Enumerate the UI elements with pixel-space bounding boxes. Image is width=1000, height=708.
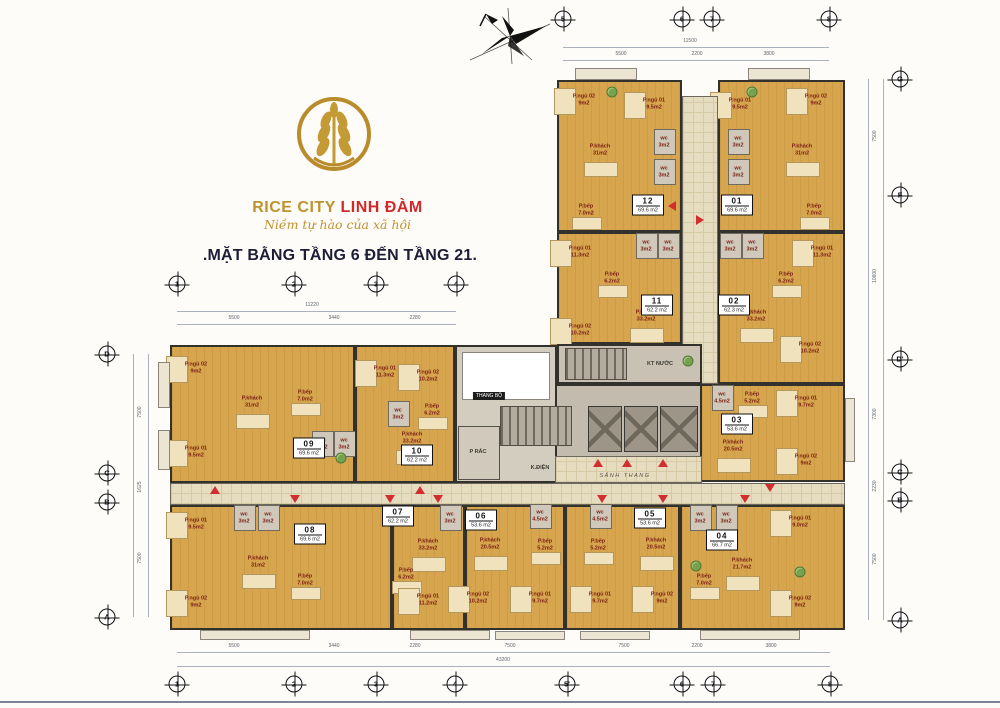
sofa-furniture: [740, 328, 774, 343]
unit-number: 12: [636, 197, 660, 207]
axis-marker-5: 5: [555, 11, 572, 28]
axis-marker-7: 7: [704, 11, 721, 28]
unit-area: 66.7 m2: [710, 543, 734, 549]
dimension-line: [177, 666, 830, 667]
room-label: P.ngủ 029m2: [573, 93, 595, 106]
room-label: wc3m2: [392, 407, 403, 420]
room-name: P.bếp: [778, 271, 794, 278]
room-name: wc: [720, 511, 731, 518]
room-name: wc: [658, 135, 669, 142]
room-name: P.ngủ 02: [651, 591, 673, 598]
room-name: wc: [338, 437, 349, 444]
unit-chip: 0466.7 m2: [706, 530, 738, 551]
room-area: 6.2m2: [604, 278, 620, 285]
room-name: P.ngủ 01: [185, 517, 207, 524]
door-marker: [668, 201, 676, 211]
room-label: P.khách31m2: [590, 143, 610, 156]
dimension-line: [563, 47, 829, 48]
room-label: P.bếp7.0m2: [696, 573, 712, 586]
room-label: P.khách21.7m2: [732, 557, 752, 570]
room-name: P.bếp: [806, 203, 822, 210]
room-area: 9m2: [795, 460, 817, 467]
dimension-label: 11220: [305, 302, 319, 308]
room-label: wc3m2: [338, 437, 349, 450]
kitchen-counter: [291, 587, 321, 600]
plant-icon: [607, 87, 618, 98]
room-area: 5.2m2: [537, 545, 553, 552]
room-label: P.khách20.5m2: [480, 537, 500, 550]
room-label: P.ngủ 0111.2m2: [417, 593, 439, 606]
room-name: P.ngủ 01: [795, 395, 817, 402]
room-area: 10.2m2: [799, 348, 821, 355]
door-marker: [765, 484, 775, 492]
room-label: P.khách33.2m2: [402, 431, 422, 444]
room-name: wc: [444, 511, 455, 518]
room-label: wc3m2: [238, 511, 249, 524]
room-area: 3m2: [658, 142, 669, 149]
room-name: wc: [746, 239, 757, 246]
room-label: wc3m2: [746, 239, 757, 252]
balcony: [575, 68, 637, 80]
room-area: 6.2m2: [778, 278, 794, 285]
room-area: 4.5m2: [532, 516, 548, 523]
room-name: P.ngủ 01: [729, 97, 751, 104]
kitchen-counter: [572, 217, 602, 230]
balcony: [700, 630, 800, 640]
room-area: 9m2: [651, 598, 673, 605]
room-area: 33.2m2: [636, 316, 656, 323]
room-label: wc4.5m2: [714, 391, 730, 404]
unit-chip: 0169.6 m2: [721, 195, 753, 216]
room-name: wc: [662, 239, 673, 246]
axis-marker-2: 2: [286, 676, 303, 693]
door-marker: [740, 495, 750, 503]
dimension-label: 7500: [618, 643, 629, 649]
room-area: 7.0m2: [806, 210, 822, 217]
room-name: wc: [532, 509, 548, 516]
room-label: P.ngủ 029m2: [795, 453, 817, 466]
room-name: P.ngủ 02: [799, 341, 821, 348]
room-area: 9.7m2: [529, 598, 551, 605]
sofa-furniture: [717, 458, 751, 473]
balcony: [200, 630, 310, 640]
room-name: P.ngủ 02: [573, 93, 595, 100]
balcony: [495, 631, 565, 640]
room-area: 3m2: [238, 518, 249, 525]
unit-chip: 0762.2 m2: [382, 506, 414, 527]
unit-area: 69.6 m2: [298, 537, 322, 543]
axis-marker-A: A: [99, 609, 116, 626]
room-name: P.bếp: [537, 538, 553, 545]
room-area: 11.3m2: [811, 252, 833, 259]
dimension-label: 2280: [409, 315, 420, 321]
room-label: P.ngủ 019.5m2: [643, 97, 665, 110]
core-label: KT NƯỚC: [647, 361, 673, 367]
elevator: [660, 406, 698, 452]
sheet-bottom-edge: [0, 701, 1000, 703]
room-area: 3m2: [262, 518, 273, 525]
room-label: P.khách20.5m2: [723, 439, 743, 452]
unit-area: 69.6 m2: [725, 208, 749, 214]
room-area: 3m2: [746, 246, 757, 253]
room-name: P.ngủ 01: [417, 593, 439, 600]
room-area: 9.5m2: [185, 452, 207, 459]
room-area: 31m2: [792, 150, 812, 157]
dimension-label: 3800: [763, 51, 774, 57]
room-label: P.ngủ 0111.3m2: [811, 245, 833, 258]
axis-marker-C: C: [892, 464, 909, 481]
room-name: P.bếp: [398, 567, 414, 574]
room-area: 3m2: [732, 172, 743, 179]
axis-marker-5': 5': [559, 676, 576, 693]
room-area: 5.2m2: [744, 398, 760, 405]
room-area: 11.3m2: [569, 252, 591, 259]
room-name: P.ngủ 02: [185, 595, 207, 602]
sofa-furniture: [584, 162, 618, 177]
dimension-label: 2200: [691, 51, 702, 57]
room-area: 3m2: [338, 444, 349, 451]
room-area: 9.7m2: [795, 402, 817, 409]
balcony: [158, 362, 170, 408]
unit-area: 53.6 m2: [725, 427, 749, 433]
room-area: 7.0m2: [696, 580, 712, 587]
door-marker: [658, 459, 668, 467]
room-label: wc4.5m2: [592, 509, 608, 522]
dimension-line: [883, 79, 884, 620]
room-label: P.khách33.2m2: [418, 538, 438, 551]
room-label: P.ngủ 019.7m2: [589, 591, 611, 604]
room-area: 9.5m2: [185, 524, 207, 531]
room-label: wc3m2: [720, 511, 731, 524]
room-area: 9.0m2: [789, 522, 811, 529]
room-label: P.ngủ 0210.2m2: [417, 369, 439, 382]
axis-marker-6: 6: [674, 676, 691, 693]
room-name: P.khách: [402, 431, 422, 438]
room-label: wc3m2: [694, 511, 705, 524]
unit-chip: 0353.6 m2: [721, 414, 753, 435]
room-label: P.ngủ 019.5m2: [185, 517, 207, 530]
axis-marker-2: 2: [286, 276, 303, 293]
room-label: P.ngủ 0111.3m2: [569, 245, 591, 258]
room-label: P.ngủ 029m2: [185, 361, 207, 374]
unit-chip: 1062.2 m2: [401, 445, 433, 466]
unit-area: 69.6 m2: [636, 208, 660, 214]
room-label: P.ngủ 019.5m2: [185, 445, 207, 458]
plant-icon: [691, 561, 702, 572]
unit-number: 08: [298, 526, 322, 536]
unit-area: 62.2 m2: [405, 458, 429, 464]
dimension-line: [177, 652, 830, 653]
unit-number: 03: [725, 416, 749, 426]
room-label: P.ngủ 029m2: [789, 595, 811, 608]
room-name: wc: [732, 135, 743, 142]
axis-marker-7: 7: [705, 676, 722, 693]
unit-area: 62.2 m2: [645, 308, 669, 314]
door-marker: [658, 495, 668, 503]
room-area: 10.2m2: [569, 330, 591, 337]
room-area: 9m2: [185, 602, 207, 609]
room-area: 31m2: [242, 402, 262, 409]
unit-chip: 1269.6 m2: [632, 195, 664, 216]
room-label: P.bếp7.0m2: [297, 389, 313, 402]
room-name: P.khách: [792, 143, 812, 150]
room-name: P.khách: [418, 538, 438, 545]
room-label: P.khách31m2: [248, 555, 268, 568]
room-label: wc3m2: [662, 239, 673, 252]
dimension-label: 5500: [228, 315, 239, 321]
unit-number: 09: [297, 440, 321, 450]
room-area: 31m2: [248, 562, 268, 569]
room-name: P.bếp: [604, 271, 620, 278]
room-area: 7.0m2: [297, 396, 313, 403]
door-marker: [290, 495, 300, 503]
dimension-line: [868, 79, 869, 620]
room-area: 11.3m2: [374, 372, 396, 379]
room-area: 21.7m2: [732, 564, 752, 571]
axis-marker-8: 8: [821, 11, 838, 28]
plant-icon: [683, 356, 694, 367]
room-label: P.khách20.5m2: [646, 537, 666, 550]
unit-chip: 0969.6 m2: [293, 438, 325, 459]
room-label: P.bếp7.0m2: [806, 203, 822, 216]
unit-chip: 0653.6 m2: [465, 510, 497, 531]
room-name: wc: [592, 509, 608, 516]
dimension-line: [177, 324, 456, 325]
unit-area: 62.2 m2: [386, 519, 410, 525]
room-name: wc: [262, 511, 273, 518]
room-area: 3m2: [392, 414, 403, 421]
stairs: [500, 406, 572, 446]
unit-chip: 0262.3 m2: [718, 295, 750, 316]
unit-area: 69.6 m2: [297, 451, 321, 457]
room-area: 3m2: [658, 172, 669, 179]
unit-number: 10: [405, 447, 429, 457]
room-area: 31m2: [590, 150, 610, 157]
room-label: wc3m2: [724, 239, 735, 252]
room-area: 4.5m2: [592, 516, 608, 523]
kitchen-counter: [418, 417, 448, 430]
kitchen-counter: [772, 285, 802, 298]
axis-marker-8: 8: [822, 676, 839, 693]
room-name: wc: [714, 391, 730, 398]
room-label: P.bếp5.2m2: [537, 538, 553, 551]
dimension-label: 7500: [504, 643, 515, 649]
room-area: 9.5m2: [729, 104, 751, 111]
room-label: wc3m2: [658, 165, 669, 178]
kitchen-counter: [690, 587, 720, 600]
door-marker: [696, 215, 704, 225]
room-name: P.khách: [242, 395, 262, 402]
room-name: P.ngủ 01: [374, 365, 396, 372]
room-area: 33.2m2: [746, 316, 766, 323]
room-name: P.khách: [723, 439, 743, 446]
room-area: 10.2m2: [467, 598, 489, 605]
room-label: P.khách31m2: [242, 395, 262, 408]
room-name: P.bếp: [578, 203, 594, 210]
room-label: P.bếp5.2m2: [590, 538, 606, 551]
balcony: [158, 430, 170, 470]
room-label: P.ngủ 029m2: [805, 93, 827, 106]
room-area: 5.2m2: [590, 545, 606, 552]
door-marker: [210, 486, 220, 494]
dimension-line: [563, 60, 829, 61]
kitchen-counter: [584, 552, 614, 565]
dimension-label: 5500: [228, 643, 239, 649]
room-area: 3m2: [694, 518, 705, 525]
room-label: wc3m2: [262, 511, 273, 524]
unit-number: 11: [645, 297, 669, 307]
room-area: 6.2m2: [398, 574, 414, 581]
axis-marker-B: B: [99, 494, 116, 511]
unit-number: 07: [386, 508, 410, 518]
room-area: 3m2: [720, 518, 731, 525]
room-label: P.bếp6.2m2: [398, 567, 414, 580]
room-area: 20.5m2: [723, 446, 743, 453]
floor-plan: P.ngủ 029m2P.ngủ 019.5m2wc3m2wc3m2P.khác…: [0, 0, 1000, 708]
room-name: wc: [238, 511, 249, 518]
stairs: [565, 348, 627, 380]
dimension-label: 7300: [872, 408, 878, 419]
axis-marker-3: 3: [368, 276, 385, 293]
balcony: [845, 398, 855, 462]
axis-marker-3: 3: [368, 676, 385, 693]
core-label: SẢNH THANG: [599, 473, 650, 479]
sofa-furniture: [786, 162, 820, 177]
room-area: 3m2: [732, 142, 743, 149]
door-marker: [593, 459, 603, 467]
room-name: P.khách: [646, 537, 666, 544]
room-label: wc3m2: [732, 135, 743, 148]
room-name: P.ngủ 01: [185, 445, 207, 452]
room-area: 9m2: [185, 368, 207, 375]
balcony: [410, 630, 490, 640]
room-area: 3m2: [444, 518, 455, 525]
plant-icon: [336, 453, 347, 464]
room-name: P.ngủ 02: [805, 93, 827, 100]
room-area: 9m2: [573, 100, 595, 107]
room-name: P.ngủ 02: [185, 361, 207, 368]
kitchen-counter: [800, 217, 830, 230]
room-label: P.ngủ 0210.2m2: [569, 323, 591, 336]
dimension-label: 2280: [409, 643, 420, 649]
unit-number: 06: [469, 512, 493, 522]
room-label: wc3m2: [640, 239, 651, 252]
dimension-label: 2230: [872, 480, 878, 491]
unit-area: 62.3 m2: [722, 308, 746, 314]
room-name: P.ngủ 01: [529, 591, 551, 598]
dimension-label: 3440: [328, 643, 339, 649]
room-label: P.bếp6.2m2: [424, 403, 440, 416]
room-name: P.ngủ 01: [643, 97, 665, 104]
room-area: 9m2: [789, 602, 811, 609]
balcony: [748, 68, 810, 80]
kitchen-counter: [598, 285, 628, 298]
room-area: 7.0m2: [297, 580, 313, 587]
door-marker: [385, 495, 395, 503]
room-name: P.bếp: [424, 403, 440, 410]
sofa-furniture: [242, 574, 276, 589]
room-label: P.khách31m2: [792, 143, 812, 156]
room-label: P.bếp7.0m2: [297, 573, 313, 586]
axis-marker-4: 4: [447, 676, 464, 693]
dimension-label: 1625: [137, 481, 143, 492]
dimension-label: 11500: [683, 38, 697, 44]
elevator: [588, 406, 622, 452]
core-label: K.ĐIỆN: [531, 465, 550, 471]
dimension-label: 7500: [137, 406, 143, 417]
axis-marker-D: D: [99, 346, 116, 363]
room-name: P.khách: [732, 557, 752, 564]
room-label: wc3m2: [658, 135, 669, 148]
room-name: P.bếp: [297, 573, 313, 580]
sofa-furniture: [726, 576, 760, 591]
plant-icon: [795, 567, 806, 578]
door-marker: [433, 495, 443, 503]
core-label: THANG BỘ: [473, 392, 505, 400]
room-name: wc: [694, 511, 705, 518]
unit-chip: 1162.2 m2: [641, 295, 673, 316]
unit-number: 04: [710, 532, 734, 542]
room-area: 4.5m2: [714, 398, 730, 405]
room-name: P.ngủ 02: [467, 591, 489, 598]
axis-marker-G: G: [892, 71, 909, 88]
sofa-furniture: [640, 556, 674, 571]
room-name: wc: [724, 239, 735, 246]
room-label: wc4.5m2: [532, 509, 548, 522]
dimension-label: 5500: [615, 51, 626, 57]
dimension-label: 7500: [872, 553, 878, 564]
room-area: 7.0m2: [578, 210, 594, 217]
room-label: P.ngủ 019.0m2: [789, 515, 811, 528]
kitchen-counter: [531, 552, 561, 565]
room-area: 20.5m2: [646, 544, 666, 551]
core-label: P RÁC: [469, 449, 486, 455]
room-area: 9m2: [805, 100, 827, 107]
room-name: P.bếp: [590, 538, 606, 545]
room-area: 3m2: [662, 246, 673, 253]
room-name: P.ngủ 01: [811, 245, 833, 252]
axis-marker-6: 6: [674, 11, 691, 28]
axis-marker-B: B: [892, 492, 909, 509]
sofa-furniture: [474, 556, 508, 571]
axis-marker-C: C: [99, 465, 116, 482]
room-label: P.bếp6.2m2: [604, 271, 620, 284]
room-area: 9.7m2: [589, 598, 611, 605]
room-label: P.ngủ 019.5m2: [729, 97, 751, 110]
floorplan-sheet: RICE CITY LINH ĐÀM Niềm tự hào của xã hộ…: [0, 0, 1000, 708]
door-marker: [415, 486, 425, 494]
room-name: P.ngủ 01: [569, 245, 591, 252]
room-area: 33.2m2: [418, 545, 438, 552]
room-name: P.ngủ 02: [417, 369, 439, 376]
plant-icon: [747, 87, 758, 98]
unit-area: 53.6 m2: [469, 523, 493, 529]
room-name: P.khách: [248, 555, 268, 562]
dimension-label: 10600: [872, 269, 878, 283]
room-name: P.khách: [590, 143, 610, 150]
room-label: P.ngủ 0210.2m2: [467, 591, 489, 604]
dimension-line: [133, 354, 134, 617]
unit-number: 02: [722, 297, 746, 307]
room-name: wc: [392, 407, 403, 414]
room-label: P.ngủ 029m2: [185, 595, 207, 608]
unit-chip: 0553.6 m2: [634, 508, 666, 529]
sofa-furniture: [412, 557, 446, 572]
kitchen-counter: [291, 403, 321, 416]
unit-number: 01: [725, 197, 749, 207]
room-label: P.ngủ 019.7m2: [529, 591, 551, 604]
room-name: P.ngủ 01: [789, 515, 811, 522]
